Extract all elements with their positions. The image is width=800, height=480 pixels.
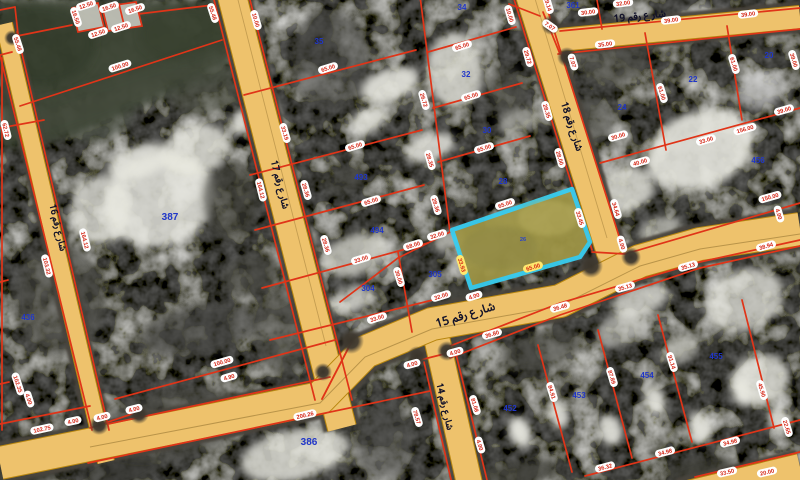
svg-text:26: 26 (520, 237, 526, 243)
svg-text:454: 454 (640, 371, 654, 380)
svg-text:452: 452 (503, 404, 517, 413)
svg-text:35: 35 (315, 37, 324, 46)
svg-text:493: 493 (354, 173, 368, 182)
svg-text:387: 387 (162, 212, 179, 223)
svg-text:34: 34 (458, 3, 467, 12)
svg-text:28: 28 (499, 177, 508, 186)
svg-text:22: 22 (689, 75, 698, 84)
svg-text:304: 304 (361, 284, 375, 293)
svg-text:24: 24 (618, 103, 627, 112)
svg-text:494: 494 (370, 226, 384, 235)
svg-text:453: 453 (572, 391, 586, 400)
svg-text:32: 32 (462, 70, 471, 79)
svg-text:436: 436 (21, 313, 35, 322)
svg-text:305: 305 (428, 270, 442, 279)
svg-text:20: 20 (765, 51, 774, 60)
svg-text:386: 386 (301, 437, 318, 448)
svg-text:361: 361 (566, 1, 580, 10)
svg-text:456: 456 (751, 156, 765, 165)
svg-text:30: 30 (483, 126, 492, 135)
svg-text:455: 455 (709, 352, 723, 361)
